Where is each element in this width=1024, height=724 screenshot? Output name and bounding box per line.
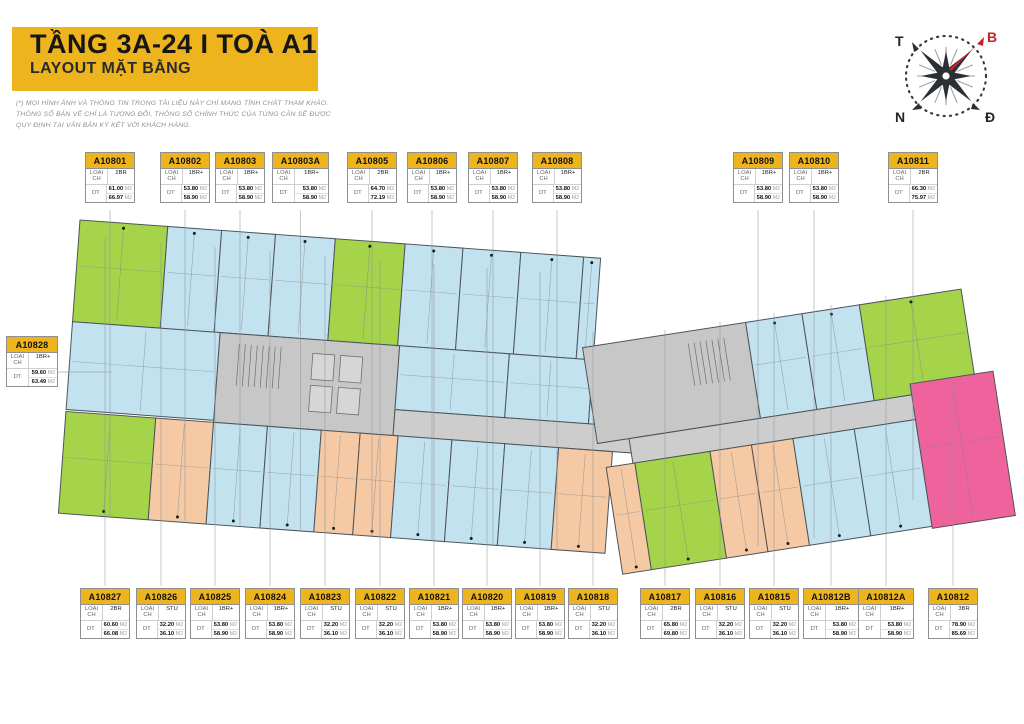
- unit-type-row: LOẠI CH1BR+: [516, 605, 564, 621]
- unit-area-value: 32.20 M2: [771, 621, 798, 630]
- unit-type-row: LOẠI CH1BR+: [804, 605, 858, 621]
- unit-area-row: DT53.80 M258.90 M2: [191, 621, 239, 638]
- unit-area-value: 64.70 M2: [369, 185, 396, 194]
- unit-area-value: 53.80 M2: [826, 621, 858, 630]
- unit-area-row: DT61.00 M266.97 M2: [86, 185, 134, 202]
- unit-area-value: 53.80 M2: [484, 621, 511, 630]
- unit-area-key: DT: [734, 185, 755, 202]
- unit-type-key: LOẠI CH: [469, 169, 491, 184]
- unit-area-row: DT53.80 M258.90 M2: [246, 621, 294, 638]
- unit-label-A10805: A10805LOẠI CH2BRDT64.70 M272.19 M2: [347, 152, 397, 203]
- unit-type-value: 1BR+: [491, 169, 517, 184]
- unit-area-row: DT53.80 M258.90 M2: [463, 621, 511, 638]
- unit-label-A10803A: A10803ALOẠI CH1BR+DT53.80 M258.90 M2: [272, 152, 329, 203]
- unit-area-value: 78.90 M2: [950, 621, 977, 630]
- unit-type-key: LOẠI CH: [641, 605, 663, 620]
- unit-type-row: LOẠI CHSTU: [137, 605, 185, 621]
- unit-type-key: LOẠI CH: [86, 169, 108, 184]
- unit-area-value: 58.90 M2: [429, 194, 456, 202]
- unit-label-A10811: A10811LOẠI CH2BRDT66.30 M275.97 M2: [888, 152, 938, 203]
- unit-type-value: 2BR: [103, 605, 129, 620]
- unit-area-key: DT: [191, 621, 212, 638]
- unit-type-value: STU: [718, 605, 744, 620]
- unit-area-key: DT: [696, 621, 717, 638]
- unit-code: A10809: [734, 153, 782, 169]
- unit-code: A10803: [216, 153, 264, 169]
- unit-type-value: 2BR: [911, 169, 937, 184]
- unit-area-value: 58.90 M2: [237, 194, 264, 202]
- unit-code: A10820: [463, 589, 511, 605]
- unit-area-value: 75.97 M2: [910, 194, 937, 202]
- unit-label-A10823: A10823LOẠI CHSTUDT32.20 M236.10 M2: [300, 588, 350, 639]
- unit-area-value: 53.80 M2: [295, 185, 328, 194]
- unit-area-key: DT: [569, 621, 590, 638]
- unit-type-row: LOẠI CH1BR+: [410, 605, 458, 621]
- unit-label-A10828: A10828LOẠI CH1BR+DT59.60 M263.49 M2: [6, 336, 58, 387]
- unit-label-A10810: A10810LOẠI CH1BR+DT53.80 M258.90 M2: [789, 152, 839, 203]
- unit-area-value: 59.60 M2: [29, 369, 57, 378]
- unit-area-row: DT53.80 M258.90 M2: [469, 185, 517, 202]
- unit-label-A10803: A10803LOẠI CH1BR+DT53.80 M258.90 M2: [215, 152, 265, 203]
- unit-type-value: 2BR: [108, 169, 134, 184]
- unit-area-row: DT32.20 M236.10 M2: [356, 621, 404, 638]
- unit-type-row: LOẠI CHSTU: [356, 605, 404, 621]
- unit-type-value: 1BR+: [430, 169, 456, 184]
- unit-area-row: DT32.20 M236.10 M2: [569, 621, 617, 638]
- unit-type-row: LOẠI CH2BR: [889, 169, 937, 185]
- compass-label-west: T: [895, 33, 904, 49]
- unit-area-value: 58.90 M2: [182, 194, 209, 202]
- unit-area-key: DT: [161, 185, 182, 202]
- unit-area-value: 66.97 M2: [107, 194, 134, 202]
- unit-area-row: DT53.80 M258.90 M2: [410, 621, 458, 638]
- unit-area-value: 72.19 M2: [369, 194, 396, 202]
- unit-area-key: DT: [301, 621, 322, 638]
- unit-type-key: LOẠI CH: [516, 605, 538, 620]
- unit-area-row: DT53.80 M258.90 M2: [408, 185, 456, 202]
- unit-area-key: DT: [348, 185, 369, 202]
- unit-type-value: STU: [591, 605, 617, 620]
- unit-area-row: DT60.60 M266.08 M2: [81, 621, 129, 638]
- unit-type-value: 1BR+: [29, 353, 57, 368]
- unit-area-key: DT: [859, 621, 881, 638]
- unit-type-row: LOẠI CH1BR+: [161, 169, 209, 185]
- unit-type-key: LOẠI CH: [7, 353, 29, 368]
- unit-area-value: 61.00 M2: [107, 185, 134, 194]
- unit-area-value: 58.90 M2: [811, 194, 838, 202]
- unit-label-A10809: A10809LOẠI CH1BR+DT53.80 M258.90 M2: [733, 152, 783, 203]
- unit-type-key: LOẠI CH: [804, 605, 826, 620]
- unit-area-key: DT: [463, 621, 484, 638]
- unit-area-row: DT53.80 M258.90 M2: [216, 185, 264, 202]
- unit-area-value: 36.10 M2: [158, 630, 185, 638]
- unit-type-row: LOẠI CHSTU: [750, 605, 798, 621]
- unit-type-key: LOẠI CH: [410, 605, 432, 620]
- unit-label-A10802: A10802LOẠI CH1BR+DT53.80 M258.90 M2: [160, 152, 210, 203]
- unit-type-row: LOẠI CH1BR+: [859, 605, 913, 621]
- unit-code: A10826: [137, 589, 185, 605]
- unit-area-value: 32.20 M2: [590, 621, 617, 630]
- unit-label-A10807: A10807LOẠI CH1BR+DT53.80 M258.90 M2: [468, 152, 518, 203]
- compass-graphic: [906, 36, 986, 116]
- unit-code: A10808: [533, 153, 581, 169]
- unit-code: A10810: [790, 153, 838, 169]
- unit-area-value: 53.80 M2: [881, 621, 913, 630]
- unit-label-A10827: A10827LOẠI CH2BRDT60.60 M266.08 M2: [80, 588, 130, 639]
- unit-area-value: 58.90 M2: [554, 194, 581, 202]
- unit-area-value: 58.90 M2: [826, 630, 858, 638]
- unit-code: A10819: [516, 589, 564, 605]
- unit-area-key: DT: [641, 621, 662, 638]
- unit-type-key: LOẠI CH: [859, 605, 881, 620]
- unit-area-row: DT59.60 M263.49 M2: [7, 369, 57, 386]
- unit-area-value: 66.08 M2: [102, 630, 129, 638]
- unit-area-value: 53.80 M2: [755, 185, 782, 194]
- unit-code: A10821: [410, 589, 458, 605]
- unit-type-key: LOẠI CH: [216, 169, 238, 184]
- unit-label-A10822: A10822LOẠI CHSTUDT32.20 M236.10 M2: [355, 588, 405, 639]
- unit-code: A10807: [469, 153, 517, 169]
- unit-area-key: DT: [469, 185, 490, 202]
- unit-type-row: LOẠI CHSTU: [569, 605, 617, 621]
- unit-type-row: LOẠI CH1BR+: [463, 605, 511, 621]
- unit-code: A10802: [161, 153, 209, 169]
- unit-code: A10803A: [273, 153, 328, 169]
- unit-type-row: LOẠI CH1BR+: [734, 169, 782, 185]
- unit-area-row: DT78.90 M285.69 M2: [929, 621, 977, 638]
- unit-type-key: LOẠI CH: [356, 605, 378, 620]
- unit-code: A10806: [408, 153, 456, 169]
- unit-type-key: LOẠI CH: [533, 169, 555, 184]
- unit-area-row: DT32.20 M236.10 M2: [137, 621, 185, 638]
- unit-code: A10823: [301, 589, 349, 605]
- unit-area-value: 58.90 M2: [295, 194, 328, 202]
- unit-type-key: LOẠI CH: [301, 605, 323, 620]
- unit-area-row: DT66.30 M275.97 M2: [889, 185, 937, 202]
- unit-label-A10806: A10806LOẠI CH1BR+DT53.80 M258.90 M2: [407, 152, 457, 203]
- unit-code: A10816: [696, 589, 744, 605]
- unit-area-value: 58.90 M2: [267, 630, 294, 638]
- unit-label-A10820: A10820LOẠI CH1BR+DT53.80 M258.90 M2: [462, 588, 512, 639]
- unit-area-value: 53.80 M2: [212, 621, 239, 630]
- unit-type-row: LOẠI CH1BR+: [216, 169, 264, 185]
- unit-label-A10819: A10819LOẠI CH1BR+DT53.80 M258.90 M2: [515, 588, 565, 639]
- unit-area-key: DT: [137, 621, 158, 638]
- unit-type-value: 1BR+: [183, 169, 209, 184]
- unit-type-value: 1BR+: [238, 169, 264, 184]
- unit-type-key: LOẠI CH: [81, 605, 103, 620]
- unit-code: A10815: [750, 589, 798, 605]
- unit-type-row: LOẠI CH2BR: [86, 169, 134, 185]
- unit-label-A10821: A10821LOẠI CH1BR+DT53.80 M258.90 M2: [409, 588, 459, 639]
- unit-type-row: LOẠI CH2BR: [81, 605, 129, 621]
- unit-type-row: LOẠI CH1BR+: [533, 169, 581, 185]
- unit-type-key: LOẠI CH: [889, 169, 911, 184]
- unit-code: A10812A: [859, 589, 913, 605]
- unit-area-value: 32.20 M2: [158, 621, 185, 630]
- unit-type-key: LOẠI CH: [734, 169, 756, 184]
- unit-code: A10825: [191, 589, 239, 605]
- unit-area-value: 53.80 M2: [182, 185, 209, 194]
- unit-label-A10818: A10818LOẠI CHSTUDT32.20 M236.10 M2: [568, 588, 618, 639]
- unit-type-key: LOẠI CH: [790, 169, 812, 184]
- unit-type-value: 1BR+: [485, 605, 511, 620]
- unit-area-row: DT53.80 M258.90 M2: [516, 621, 564, 638]
- unit-code: A10805: [348, 153, 396, 169]
- unit-code: A10817: [641, 589, 689, 605]
- unit-type-value: 1BR+: [555, 169, 581, 184]
- unit-label-A10825: A10825LOẠI CH1BR+DT53.80 M258.90 M2: [190, 588, 240, 639]
- unit-area-value: 66.30 M2: [910, 185, 937, 194]
- unit-area-value: 53.80 M2: [537, 621, 564, 630]
- unit-area-value: 32.20 M2: [717, 621, 744, 630]
- unit-area-value: 58.90 M2: [490, 194, 517, 202]
- unit-area-row: DT53.80 M258.90 M2: [734, 185, 782, 202]
- unit-area-row: DT64.70 M272.19 M2: [348, 185, 396, 202]
- unit-type-value: 1BR+: [268, 605, 294, 620]
- unit-area-value: 85.69 M2: [950, 630, 977, 638]
- unit-type-key: LOẠI CH: [137, 605, 159, 620]
- unit-area-value: 65.80 M2: [662, 621, 689, 630]
- unit-type-value: STU: [159, 605, 185, 620]
- unit-area-row: DT65.80 M269.80 M2: [641, 621, 689, 638]
- unit-type-row: LOẠI CH1BR+: [246, 605, 294, 621]
- unit-area-value: 32.20 M2: [377, 621, 404, 630]
- unit-code: A10801: [86, 153, 134, 169]
- unit-area-value: 36.10 M2: [377, 630, 404, 638]
- unit-type-value: 3BR: [951, 605, 977, 620]
- unit-area-value: 58.90 M2: [755, 194, 782, 202]
- unit-area-value: 60.60 M2: [102, 621, 129, 630]
- unit-area-value: 58.90 M2: [881, 630, 913, 638]
- unit-area-key: DT: [804, 621, 826, 638]
- unit-type-key: LOẠI CH: [569, 605, 591, 620]
- unit-type-key: LOẠI CH: [750, 605, 772, 620]
- unit-area-row: DT53.80 M258.90 M2: [859, 621, 913, 638]
- unit-area-value: 63.49 M2: [29, 378, 57, 386]
- unit-type-value: STU: [378, 605, 404, 620]
- unit-area-key: DT: [889, 185, 910, 202]
- unit-type-key: LOẠI CH: [463, 605, 485, 620]
- unit-area-row: DT53.80 M258.90 M2: [161, 185, 209, 202]
- unit-area-value: 36.10 M2: [590, 630, 617, 638]
- unit-type-row: LOẠI CH1BR+: [408, 169, 456, 185]
- unit-code: A10812: [929, 589, 977, 605]
- unit-area-value: 58.90 M2: [537, 630, 564, 638]
- unit-area-row: DT53.80 M258.90 M2: [273, 185, 328, 202]
- unit-type-value: 1BR+: [295, 169, 328, 184]
- unit-area-value: 58.90 M2: [484, 630, 511, 638]
- unit-code: A10827: [81, 589, 129, 605]
- unit-code: A10822: [356, 589, 404, 605]
- unit-area-key: DT: [790, 185, 811, 202]
- unit-area-key: DT: [273, 185, 295, 202]
- unit-code: A10828: [7, 337, 57, 353]
- unit-area-row: DT53.80 M258.90 M2: [533, 185, 581, 202]
- unit-code: A10812B: [804, 589, 858, 605]
- unit-type-row: LOẠI CH3BR: [929, 605, 977, 621]
- unit-area-value: 53.80 M2: [267, 621, 294, 630]
- unit-label-A10808: A10808LOẠI CH1BR+DT53.80 M258.90 M2: [532, 152, 582, 203]
- unit-label-A10824: A10824LOẠI CH1BR+DT53.80 M258.90 M2: [245, 588, 295, 639]
- unit-area-value: 53.80 M2: [554, 185, 581, 194]
- unit-code: A10824: [246, 589, 294, 605]
- unit-area-key: DT: [750, 621, 771, 638]
- unit-area-value: 58.90 M2: [212, 630, 239, 638]
- unit-type-key: LOẠI CH: [161, 169, 183, 184]
- unit-label-A10812B: A10812BLOẠI CH1BR+DT53.80 M258.90 M2: [803, 588, 859, 639]
- unit-type-key: LOẠI CH: [273, 169, 295, 184]
- unit-type-row: LOẠI CH1BR+: [7, 353, 57, 369]
- unit-area-row: DT32.20 M236.10 M2: [301, 621, 349, 638]
- compass-label-south: N: [895, 109, 905, 125]
- unit-area-value: 36.10 M2: [771, 630, 798, 638]
- unit-label-A10826: A10826LOẠI CHSTUDT32.20 M236.10 M2: [136, 588, 186, 639]
- unit-area-row: DT53.80 M258.90 M2: [804, 621, 858, 638]
- unit-type-value: 1BR+: [881, 605, 913, 620]
- unit-area-key: DT: [356, 621, 377, 638]
- unit-type-row: LOẠI CHSTU: [696, 605, 744, 621]
- unit-area-key: DT: [408, 185, 429, 202]
- unit-code: A10811: [889, 153, 937, 169]
- unit-area-key: DT: [216, 185, 237, 202]
- unit-type-value: STU: [323, 605, 349, 620]
- unit-type-value: 1BR+: [213, 605, 239, 620]
- unit-type-value: 2BR: [663, 605, 689, 620]
- compass-label-north: B: [987, 29, 997, 45]
- unit-area-value: 58.90 M2: [431, 630, 458, 638]
- unit-type-key: LOẠI CH: [696, 605, 718, 620]
- unit-area-key: DT: [86, 185, 107, 202]
- unit-area-key: DT: [7, 369, 29, 386]
- unit-area-key: DT: [246, 621, 267, 638]
- unit-label-A10801: A10801LOẠI CH2BRDT61.00 M266.97 M2: [85, 152, 135, 203]
- unit-type-row: LOẠI CH2BR: [348, 169, 396, 185]
- unit-type-key: LOẠI CH: [191, 605, 213, 620]
- unit-area-row: DT53.80 M258.90 M2: [790, 185, 838, 202]
- unit-type-row: LOẠI CH2BR: [641, 605, 689, 621]
- unit-type-key: LOẠI CH: [408, 169, 430, 184]
- unit-label-A10812: A10812LOẠI CH3BRDT78.90 M285.69 M2: [928, 588, 978, 639]
- unit-area-value: 53.80 M2: [431, 621, 458, 630]
- floorplan-page: TẦNG 3A-24 I TOÀ A1 LAYOUT MẶT BẰNG (*) …: [0, 0, 1024, 724]
- unit-area-value: 36.10 M2: [322, 630, 349, 638]
- unit-type-row: LOẠI CH1BR+: [191, 605, 239, 621]
- unit-area-value: 36.10 M2: [717, 630, 744, 638]
- unit-area-row: DT32.20 M236.10 M2: [696, 621, 744, 638]
- unit-type-value: 2BR: [370, 169, 396, 184]
- unit-area-value: 53.80 M2: [429, 185, 456, 194]
- unit-type-value: 1BR+: [538, 605, 564, 620]
- unit-type-row: LOẠI CH1BR+: [790, 169, 838, 185]
- compass-rose-icon: T B N Đ: [885, 18, 1007, 134]
- unit-type-value: 1BR+: [826, 605, 858, 620]
- unit-type-key: LOẠI CH: [929, 605, 951, 620]
- unit-type-row: LOẠI CHSTU: [301, 605, 349, 621]
- unit-area-key: DT: [410, 621, 431, 638]
- unit-label-A10812A: A10812ALOẠI CH1BR+DT53.80 M258.90 M2: [858, 588, 914, 639]
- unit-area-value: 53.80 M2: [490, 185, 517, 194]
- unit-type-key: LOẠI CH: [348, 169, 370, 184]
- unit-area-value: 53.80 M2: [811, 185, 838, 194]
- unit-type-row: LOẠI CH1BR+: [469, 169, 517, 185]
- unit-area-key: DT: [929, 621, 950, 638]
- unit-type-value: STU: [772, 605, 798, 620]
- unit-label-A10817: A10817LOẠI CH2BRDT65.80 M269.80 M2: [640, 588, 690, 639]
- unit-code: A10818: [569, 589, 617, 605]
- unit-label-A10815: A10815LOẠI CHSTUDT32.20 M236.10 M2: [749, 588, 799, 639]
- unit-type-value: 1BR+: [756, 169, 782, 184]
- unit-type-key: LOẠI CH: [246, 605, 268, 620]
- compass-label-east: Đ: [985, 109, 995, 125]
- unit-area-row: DT32.20 M236.10 M2: [750, 621, 798, 638]
- unit-type-value: 1BR+: [432, 605, 458, 620]
- unit-area-value: 53.80 M2: [237, 185, 264, 194]
- unit-type-row: LOẠI CH1BR+: [273, 169, 328, 185]
- unit-area-key: DT: [533, 185, 554, 202]
- unit-area-value: 32.20 M2: [322, 621, 349, 630]
- unit-area-value: 69.80 M2: [662, 630, 689, 638]
- unit-area-key: DT: [81, 621, 102, 638]
- unit-type-value: 1BR+: [812, 169, 838, 184]
- unit-label-A10816: A10816LOẠI CHSTUDT32.20 M236.10 M2: [695, 588, 745, 639]
- unit-area-key: DT: [516, 621, 537, 638]
